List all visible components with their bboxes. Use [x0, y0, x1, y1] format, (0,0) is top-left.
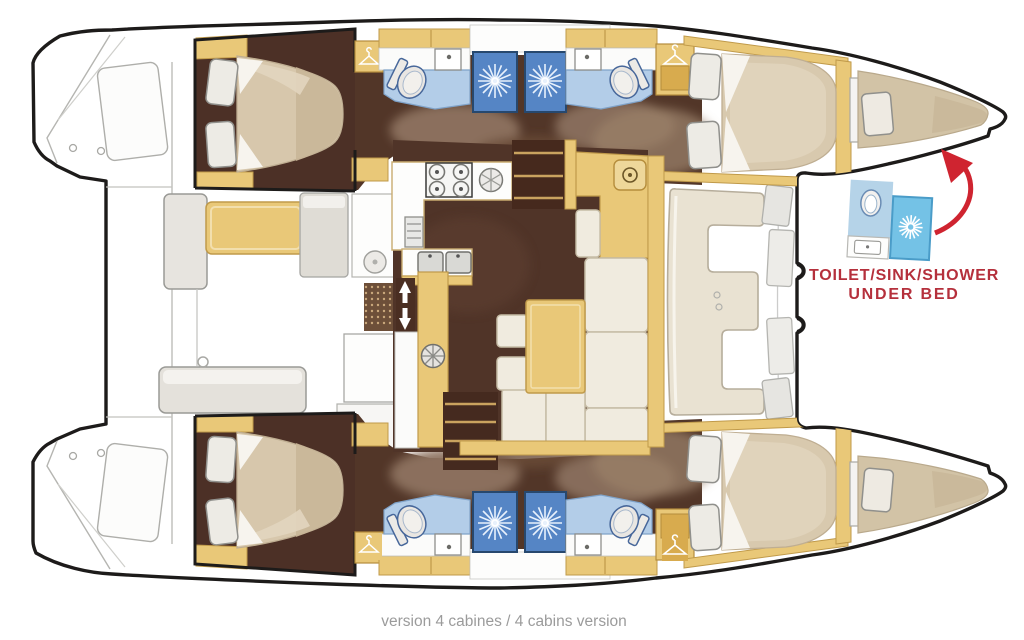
svg-text:version 4 cabines / 4 cabins v: version 4 cabines / 4 cabins version [381, 613, 627, 630]
svg-text:UNDER BED: UNDER BED [848, 286, 959, 303]
svg-text:TOILET/SINK/SHOWER: TOILET/SINK/SHOWER [809, 267, 999, 284]
